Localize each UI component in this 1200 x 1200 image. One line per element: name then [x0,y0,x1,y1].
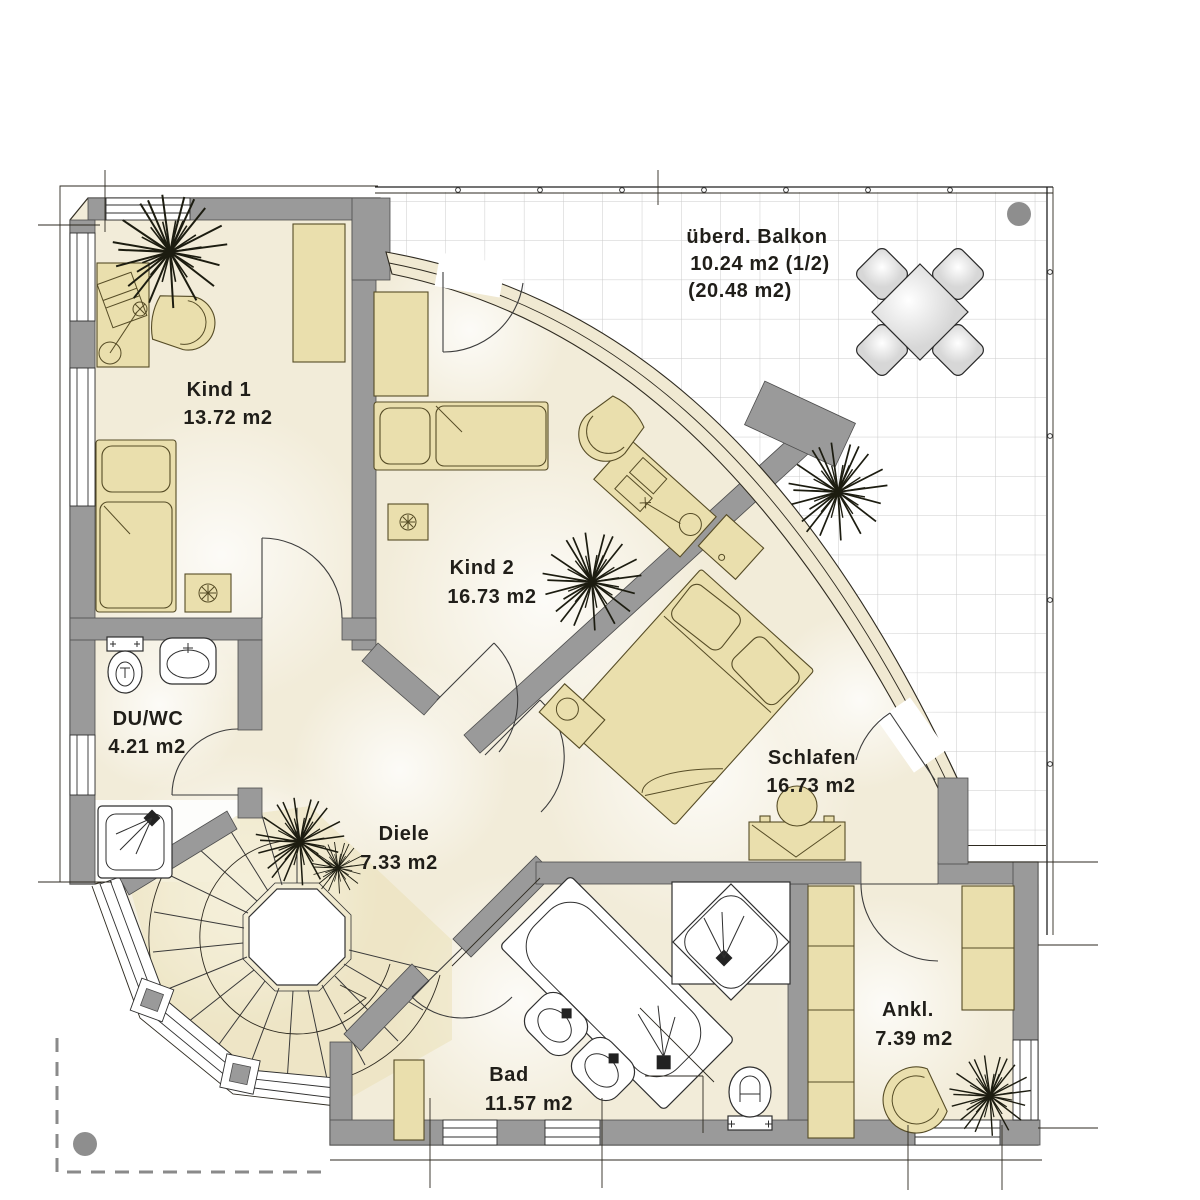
column-dot [1007,202,1031,226]
floor-plan-drawing: Kind 1 13.72 m2 Kind 2 16.73 m2 Schlafen… [0,0,1200,1200]
ankleide-wardrobe-right [962,886,1014,1010]
kind1-wardrobe [293,224,345,362]
room-area-schlafen: 16.73 m2 [766,775,855,797]
room-label-ankleide: Ankl. [882,999,934,1021]
room-label-kind1: Kind 1 [187,379,252,401]
room-area-diele: 7.33 m2 [360,852,438,874]
shower-icon [98,806,172,878]
bay-column [220,1054,260,1094]
balcony-label: überd. Balkon [686,226,827,248]
room-label-schlafen: Schlafen [768,747,856,769]
room-area-bad: 11.57 m2 [485,1093,573,1115]
room-area-kind2: 16.73 m2 [447,586,536,608]
bad-shower-icon [672,882,790,1000]
column-dot [73,1132,97,1156]
balcony-area-1: 10.24 m2 (1/2) [690,253,830,275]
kind2-side-table [388,504,428,540]
bad-toilet-icon [728,1067,772,1130]
kind2-wardrobe [374,292,428,396]
sink-icon [160,638,216,684]
floor-plan: Kind 1 13.72 m2 Kind 2 16.73 m2 Schlafen… [0,0,1200,1200]
room-label-kind2: Kind 2 [450,557,515,579]
kind1-desk [97,263,149,367]
kind1-bed [96,440,176,612]
room-label-du-wc: DU/WC [113,708,184,730]
stairwell-opening [249,889,345,985]
room-area-du-wc: 4.21 m2 [108,736,186,758]
room-area-ankleide: 7.39 m2 [875,1028,953,1050]
room-area-kind1: 13.72 m2 [183,407,272,429]
room-label-bad: Bad [489,1064,529,1086]
kind1-side-table [185,574,231,612]
toilet-icon [107,637,143,693]
balcony-table-set [854,246,987,379]
kind2-bed [374,402,548,470]
room-label-diele: Diele [379,823,430,845]
ankleide-wardrobe-left [808,886,854,1138]
balcony-area-2: (20.48 m2) [688,280,792,302]
bad-cabinet [394,1060,424,1140]
